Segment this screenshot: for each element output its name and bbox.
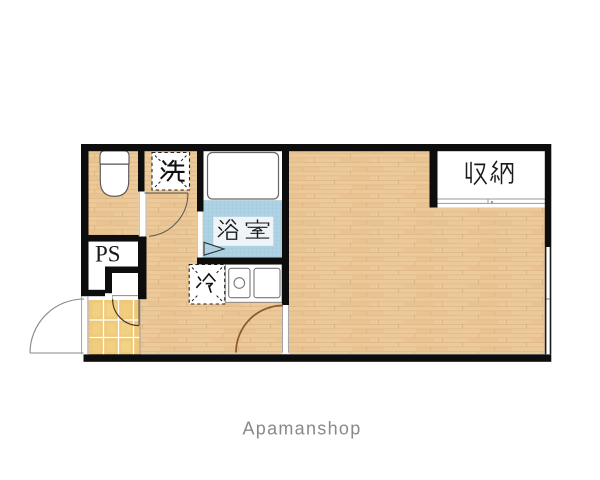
svg-text:Apamanshop: Apamanshop [242, 419, 361, 439]
svg-text:PS: PS [95, 242, 121, 267]
